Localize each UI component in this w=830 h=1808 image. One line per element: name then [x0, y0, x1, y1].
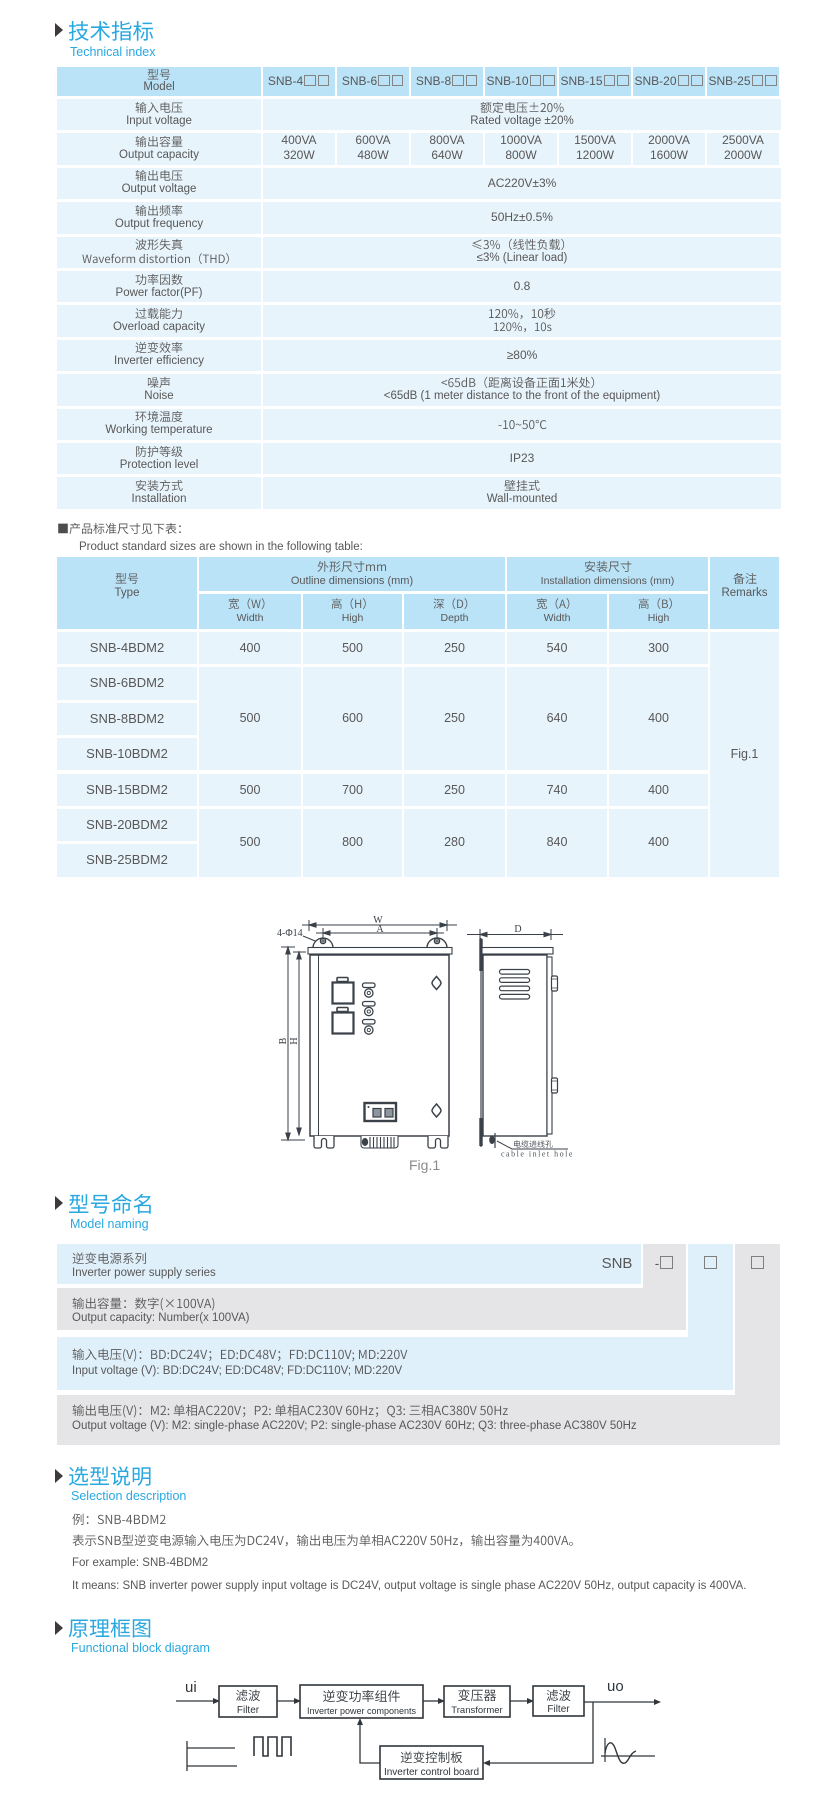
- svg-text:Filter: Filter: [547, 1704, 570, 1715]
- svg-text:cable inlet hole: cable inlet hole: [501, 1150, 574, 1159]
- svg-text:B: B: [278, 1037, 289, 1044]
- svg-text:Inverter power components: Inverter power components: [307, 1706, 417, 1716]
- svg-text:Fig.1: Fig.1: [409, 1157, 440, 1173]
- svg-text:ui: ui: [185, 1679, 197, 1696]
- svg-text:Transformer: Transformer: [451, 1705, 502, 1716]
- svg-text:4-Φ14: 4-Φ14: [277, 928, 303, 939]
- svg-text:Filter: Filter: [237, 1705, 260, 1716]
- svg-text:A: A: [376, 924, 384, 935]
- svg-text:H: H: [289, 1037, 300, 1044]
- svg-text:Inverter control board: Inverter control board: [384, 1767, 479, 1778]
- svg-text:uo: uo: [607, 1678, 624, 1695]
- svg-text:D: D: [514, 924, 521, 935]
